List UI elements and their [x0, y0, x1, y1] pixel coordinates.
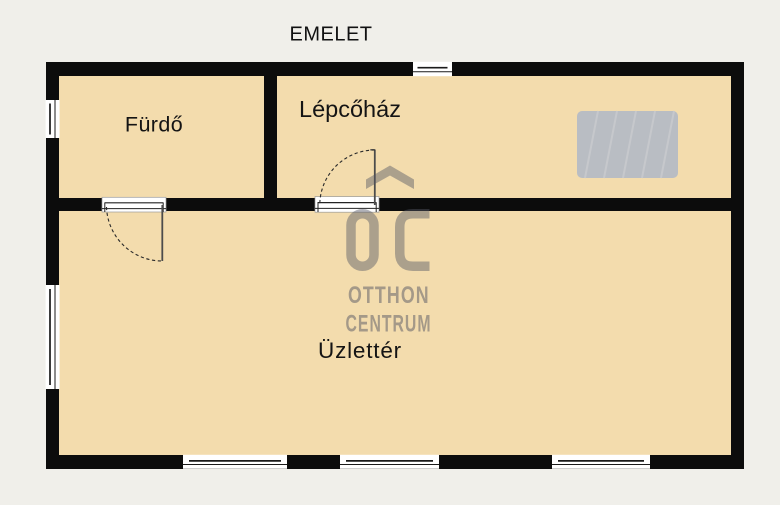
svg-text:Üzlettér: Üzlettér [318, 338, 402, 363]
svg-text:EMELET: EMELET [289, 24, 372, 46]
svg-text:CENTRUM: CENTRUM [346, 310, 432, 337]
svg-text:OTTHON: OTTHON [348, 282, 430, 309]
svg-text:Fürdő: Fürdő [125, 113, 183, 137]
svg-text:Lépcőház: Lépcőház [299, 96, 401, 122]
